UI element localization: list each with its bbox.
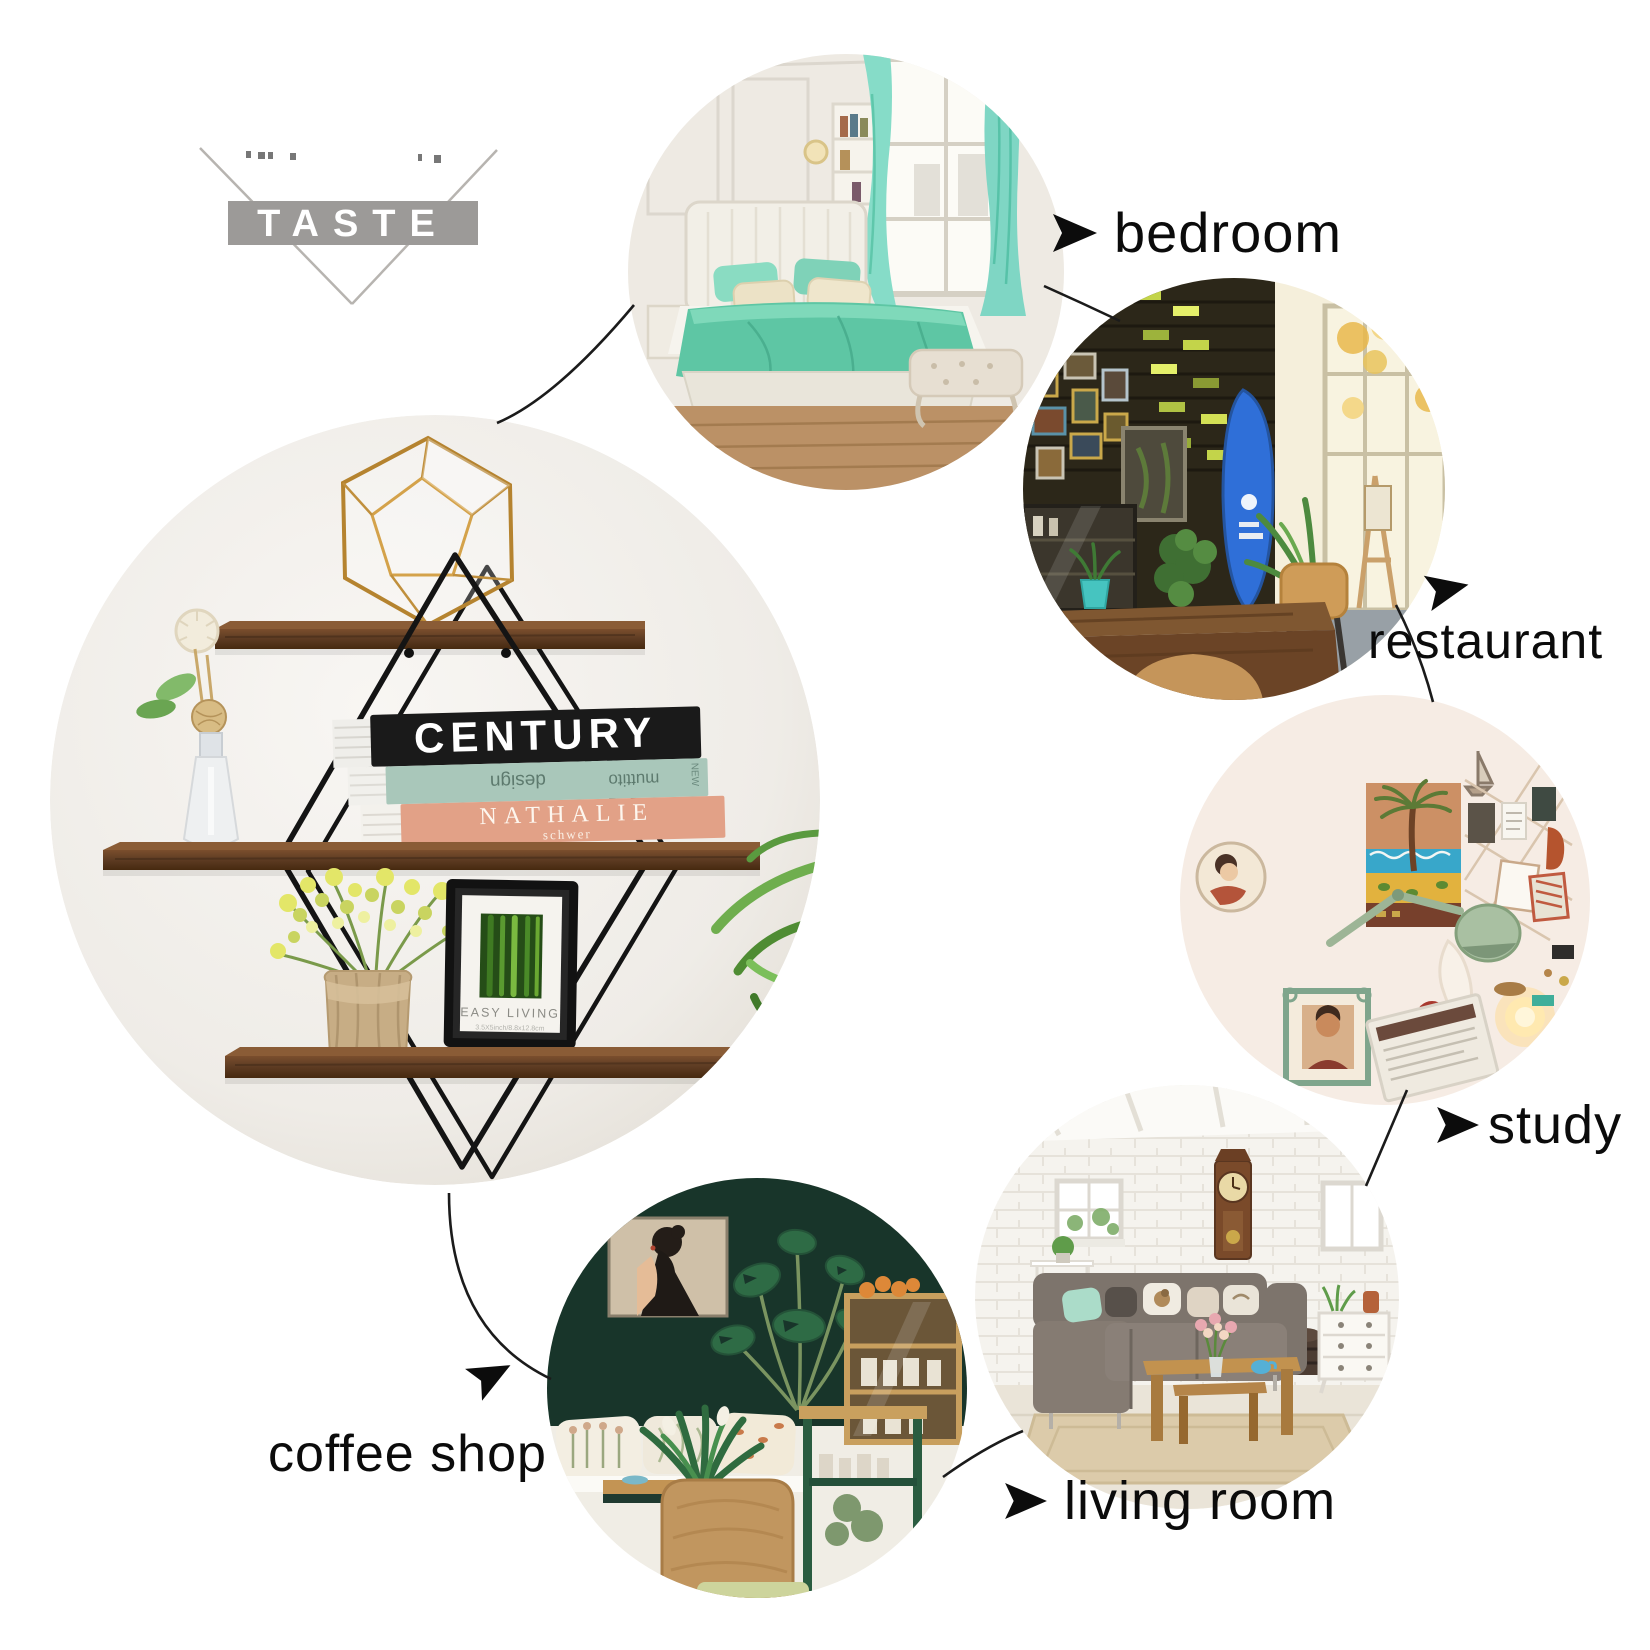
portrait-painting (609, 1218, 727, 1316)
logo-text: TASTE (257, 203, 449, 245)
wall-plate (1197, 843, 1265, 911)
arrow-icon (1436, 1106, 1480, 1144)
top-shelf (215, 621, 645, 655)
bottom-shelf (225, 1047, 742, 1084)
arrow-icon (464, 1348, 521, 1402)
wall-clock (1215, 1149, 1251, 1259)
bedroom-photo-circle (628, 54, 1064, 490)
callout-living-room: living room (1004, 1470, 1336, 1532)
callout-bedroom-label: bedroom (1114, 200, 1342, 265)
product-illustration: CENTURY design muttito NEW NATHALIE schw… (50, 415, 820, 1185)
taste-logo: TASTE (160, 108, 540, 338)
book-teal-word2: muttito (608, 769, 660, 789)
callout-restaurant-label: restaurant (1368, 613, 1603, 669)
living-room-photo-circle (975, 1085, 1399, 1509)
arrow-icon (1423, 566, 1474, 612)
book-subtitle-schwer: schwer (543, 826, 592, 842)
book-title-nathalie: NATHALIE (479, 800, 654, 831)
product-scene-infographic: TASTE (0, 0, 1650, 1650)
arrow-icon (1004, 1482, 1048, 1520)
study-photo-circle (1180, 695, 1590, 1105)
frame-size-text: 3.5X5inch/8.8x12.8cm (475, 1024, 545, 1032)
callout-coffee-shop-label: coffee shop (268, 1425, 547, 1483)
callout-restaurant: restaurant (1368, 612, 1603, 670)
callout-living-room-label: living room (1064, 1470, 1336, 1532)
middle-shelf (103, 842, 760, 876)
portrait-frame (1284, 989, 1370, 1083)
logo-tick-marks (246, 151, 441, 163)
book-teal-edge: NEW (688, 763, 700, 787)
book-title-century: CENTURY (413, 708, 658, 761)
foreground-chair (662, 1480, 809, 1598)
callout-coffee-shop: coffee shop (268, 1424, 547, 1484)
arrow-icon (1052, 213, 1098, 253)
wall-sconce (805, 141, 827, 163)
easy-living-frame: EASY LIVING 3.5X5inch/8.8x12.8cm (444, 879, 579, 1049)
frame-title: EASY LIVING (460, 1005, 560, 1021)
callout-study-label: study (1488, 1094, 1622, 1156)
product-photo-circle: CENTURY design muttito NEW NATHALIE schw… (50, 415, 820, 1185)
coffee-shop-photo-circle (547, 1178, 967, 1598)
bright-window (1325, 306, 1445, 610)
book-teal-word1: design (490, 769, 547, 791)
callout-study: study (1436, 1094, 1622, 1156)
wood-floor (628, 406, 1064, 490)
book-stack: CENTURY design muttito NEW NATHALIE schw… (332, 706, 725, 848)
callout-bedroom: bedroom (1052, 200, 1342, 265)
